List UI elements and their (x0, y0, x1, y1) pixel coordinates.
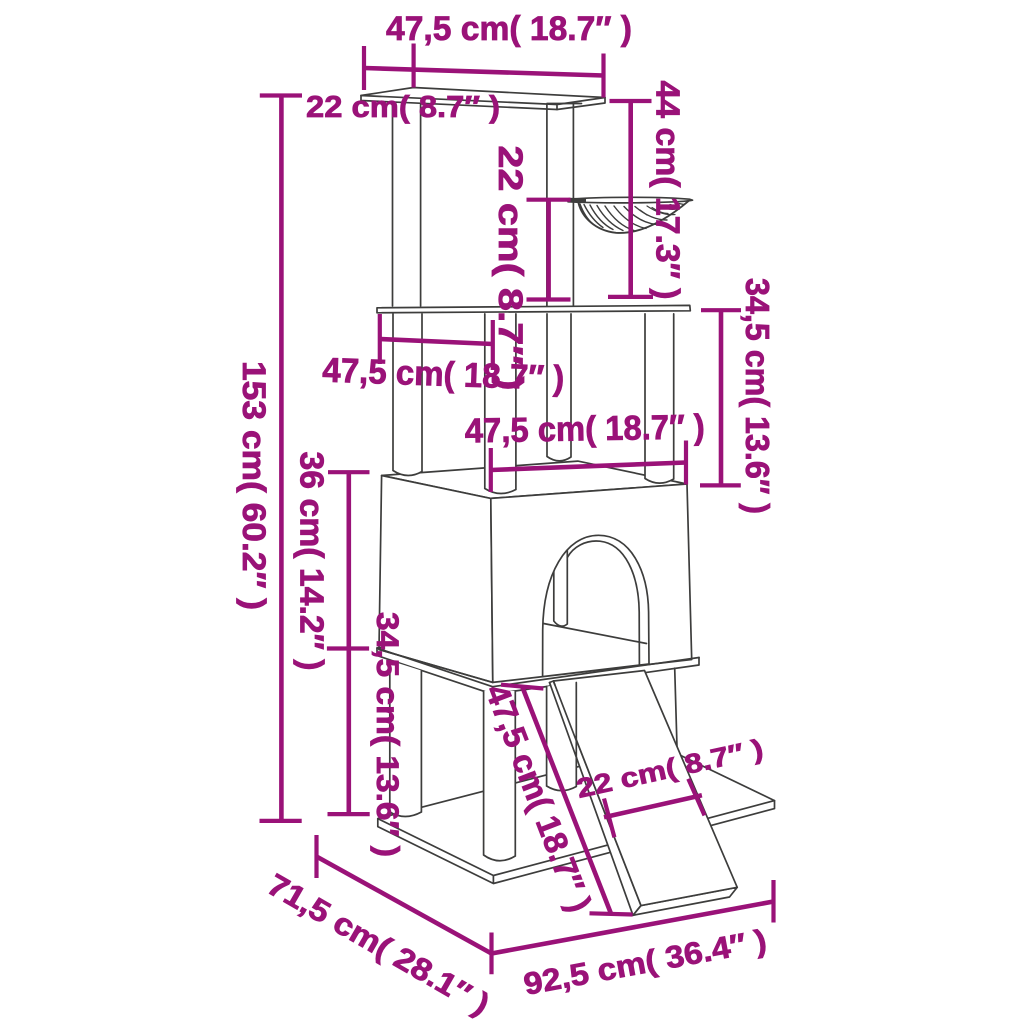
svg-text:44 cm( 17.3″ ): 44 cm( 17.3″ ) (649, 81, 686, 300)
svg-text:47,5 cm( 18.7″ ): 47,5 cm( 18.7″ ) (386, 10, 632, 48)
svg-text:36 cm( 14.2″ ): 36 cm( 14.2″ ) (293, 452, 330, 671)
svg-text:34,5 cm( 13.6″ ): 34,5 cm( 13.6″ ) (370, 612, 406, 857)
svg-text:153 cm( 60.2″ ): 153 cm( 60.2″ ) (236, 361, 272, 610)
svg-text:22 cm( 8.7″ ): 22 cm( 8.7″ ) (491, 145, 529, 390)
svg-text:47,5 cm( 18.7″ ): 47,5 cm( 18.7″ ) (464, 408, 705, 450)
svg-text:22 cm( 8.7″ ): 22 cm( 8.7″ ) (306, 89, 500, 124)
svg-text:34,5 cm( 13.6″ ): 34,5 cm( 13.6″ ) (739, 278, 776, 514)
